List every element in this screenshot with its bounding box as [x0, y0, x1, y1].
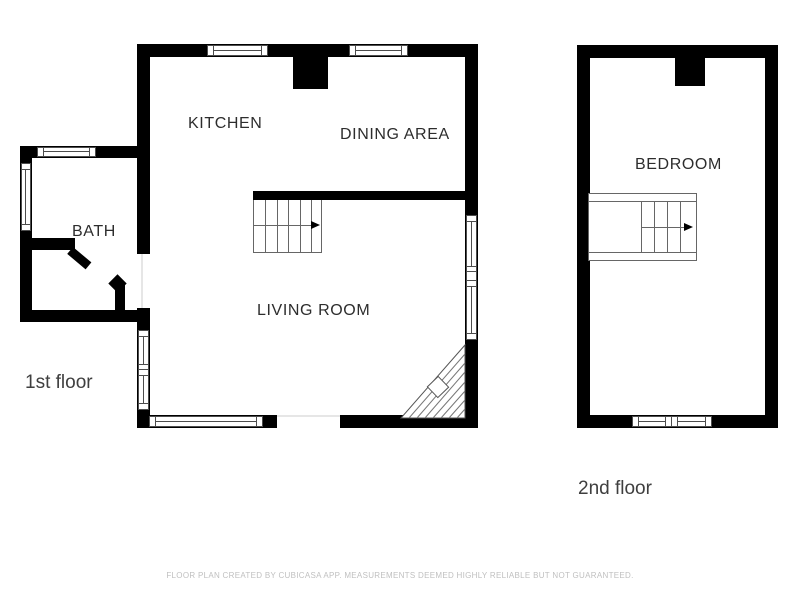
- window: [138, 369, 149, 410]
- room-label-bath: BATH: [72, 224, 116, 240]
- room-label-dining-area: DINING AREA: [340, 127, 450, 143]
- stairs-direction-arrow-icon: [254, 225, 312, 226]
- window: [466, 280, 477, 340]
- floor-plan-canvas: KITCHEN DINING AREA BATH LIVING ROOM 1st…: [0, 0, 800, 600]
- first-floor-label: 1st floor: [25, 373, 93, 392]
- second-floor-label: 2nd floor: [578, 479, 652, 498]
- chimney: [675, 45, 705, 86]
- window: [149, 416, 263, 427]
- stairs-direction-arrow-icon: [641, 227, 685, 228]
- bath-bottom-wall: [20, 310, 150, 322]
- room-label-kitchen: KITCHEN: [188, 116, 262, 132]
- window: [207, 45, 268, 56]
- window: [21, 163, 31, 231]
- window: [671, 416, 712, 427]
- window: [349, 45, 408, 56]
- bath-interior-wall: [20, 238, 75, 250]
- chimney: [293, 44, 328, 89]
- disclaimer-text: FLOOR PLAN CREATED BY CUBICASA APP. MEAS…: [0, 571, 800, 580]
- staircase: [253, 200, 322, 253]
- bath-living-door-opening: [141, 254, 143, 308]
- window: [138, 330, 149, 371]
- window: [37, 147, 96, 157]
- stairs-interior-wall: [253, 191, 478, 200]
- room-label-bedroom: BEDROOM: [635, 157, 722, 173]
- window: [632, 416, 672, 427]
- entry-door-opening: [277, 415, 340, 417]
- room-label-living-room: LIVING ROOM: [257, 303, 370, 319]
- second-floor-right-wall: [765, 45, 778, 428]
- fireplace-icon: [399, 340, 467, 420]
- bath-door: [67, 247, 91, 269]
- window: [466, 215, 477, 273]
- staircase: [588, 193, 697, 261]
